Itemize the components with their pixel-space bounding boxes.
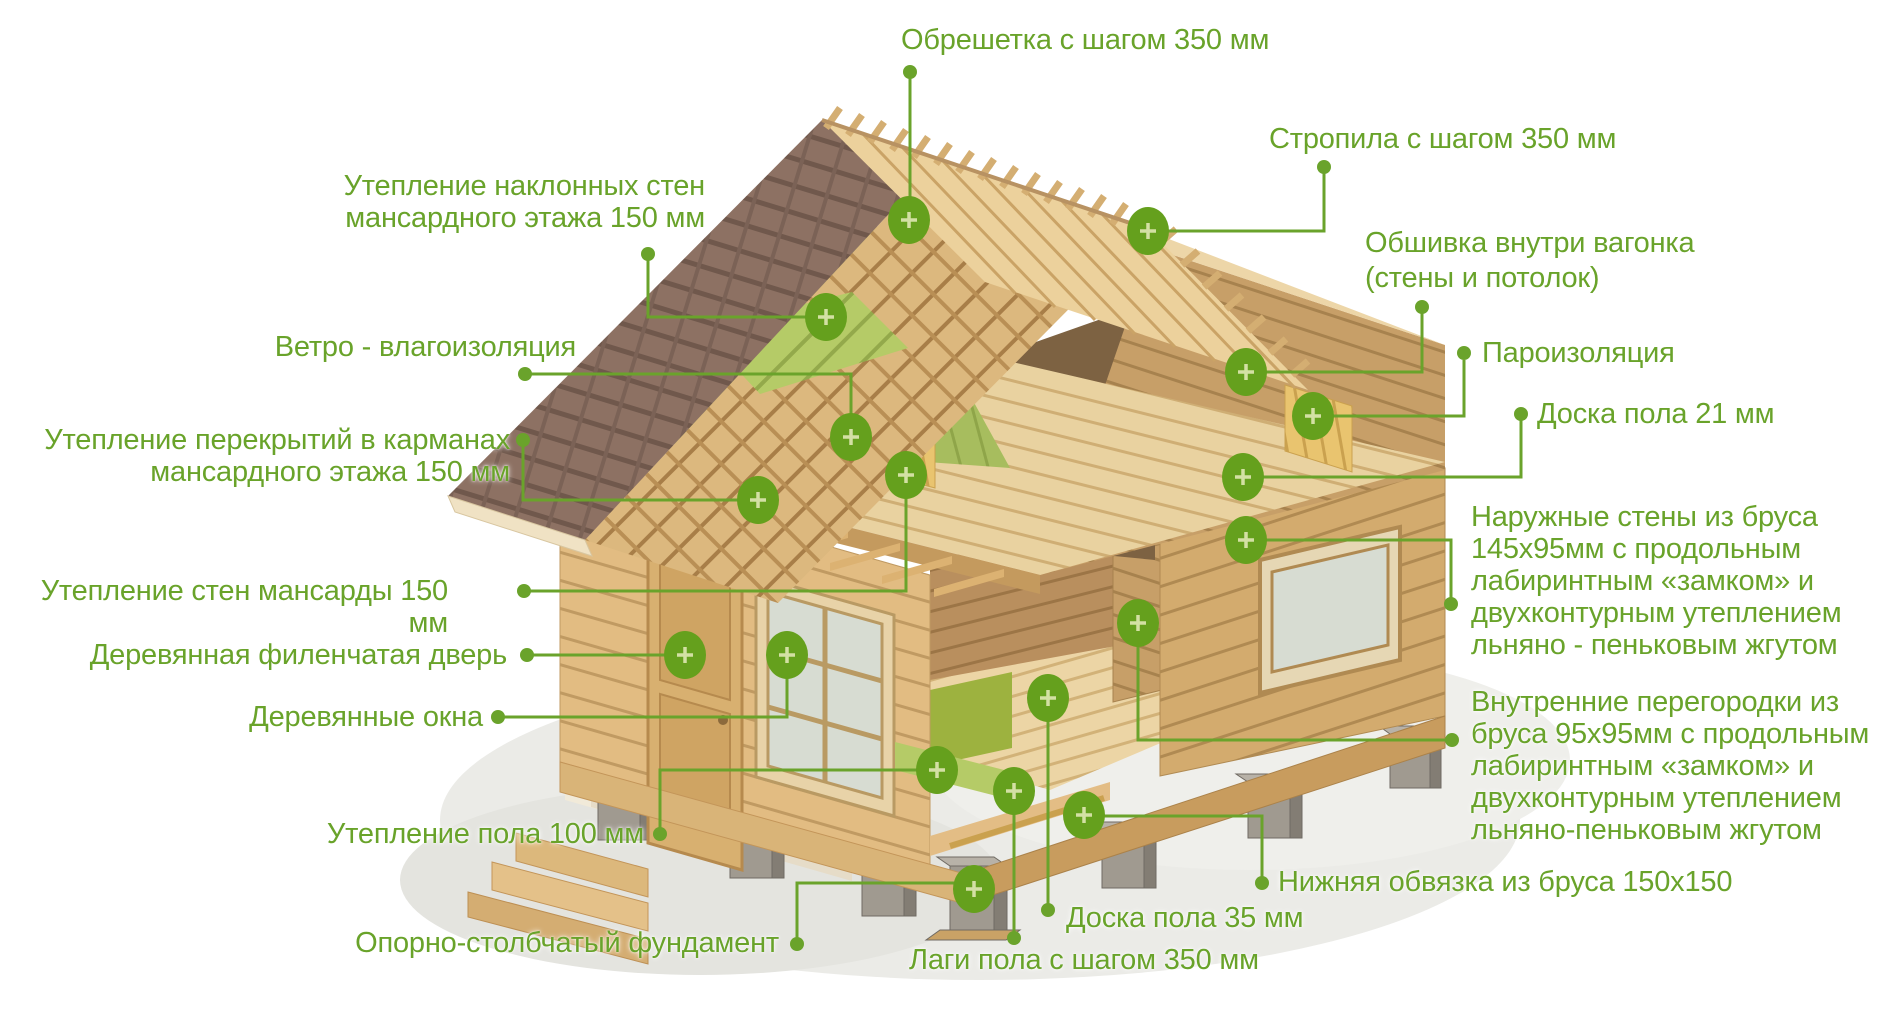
diagram-stage: Обрешетка с шагом 350 мм Стропила с шаго… [0, 0, 1900, 1014]
label-naklonnye: Утепление наклонных стен мансардного эта… [344, 170, 705, 234]
label-oporno: Опорно-столбчатый фундамент [355, 927, 779, 959]
marker-naruzhnye [1225, 516, 1267, 564]
marker-doska21 [1222, 453, 1264, 501]
marker-doska35 [1027, 674, 1069, 722]
label-obshivka: Обшивка внутри вагонка (стены и потолок) [1365, 226, 1694, 296]
marker-okna [766, 631, 808, 679]
marker-pol100 [916, 746, 958, 794]
label-vnutrennie: Внутренние перегородки из бруса 95х95мм … [1471, 686, 1869, 846]
label-paroizolyaciya: Пароизоляция [1482, 337, 1675, 369]
label-doska21: Доска пола 21 мм [1537, 398, 1774, 430]
label-perekrytiya: Утепление перекрытий в карманах мансардн… [44, 424, 510, 488]
label-dver: Деревянная филенчатая дверь [90, 639, 507, 671]
marker-vnutrennie [1117, 599, 1159, 647]
label-lagi: Лаги пола с шагом 350 мм [909, 944, 1259, 976]
connector-stropila [1148, 167, 1324, 231]
marker-sten-mansardy [885, 451, 927, 499]
label-obreshetka: Обрешетка с шагом 350 мм [901, 24, 1269, 56]
marker-vetro [830, 413, 872, 461]
label-obvyazka: Нижняя обвязка из бруса 150х150 [1278, 866, 1732, 898]
marker-oporno [953, 865, 995, 913]
marker-naklonnye [805, 293, 847, 341]
label-pol100: Утепление пола 100 мм [327, 818, 644, 850]
marker-paroizolyaciya [1292, 392, 1334, 440]
label-okna: Деревянные окна [249, 701, 483, 733]
window-front [756, 576, 894, 816]
marker-dver [664, 631, 706, 679]
label-sten-mansardy: Утепление стен мансарды 150 мм [0, 575, 448, 639]
marker-lagi [993, 767, 1035, 815]
label-stropila: Стропила с шагом 350 мм [1269, 123, 1616, 155]
marker-stropila [1127, 207, 1169, 255]
marker-perekrytiya [737, 476, 779, 524]
marker-obvyazka [1063, 791, 1105, 839]
label-naruzhnye: Наружные стены из бруса 145х95мм с продо… [1471, 501, 1841, 661]
marker-obreshetka [888, 196, 930, 244]
marker-obshivka [1225, 348, 1267, 396]
label-vetro: Ветро - влагоизоляция [275, 331, 576, 363]
label-doska35: Доска пола 35 мм [1066, 902, 1303, 934]
